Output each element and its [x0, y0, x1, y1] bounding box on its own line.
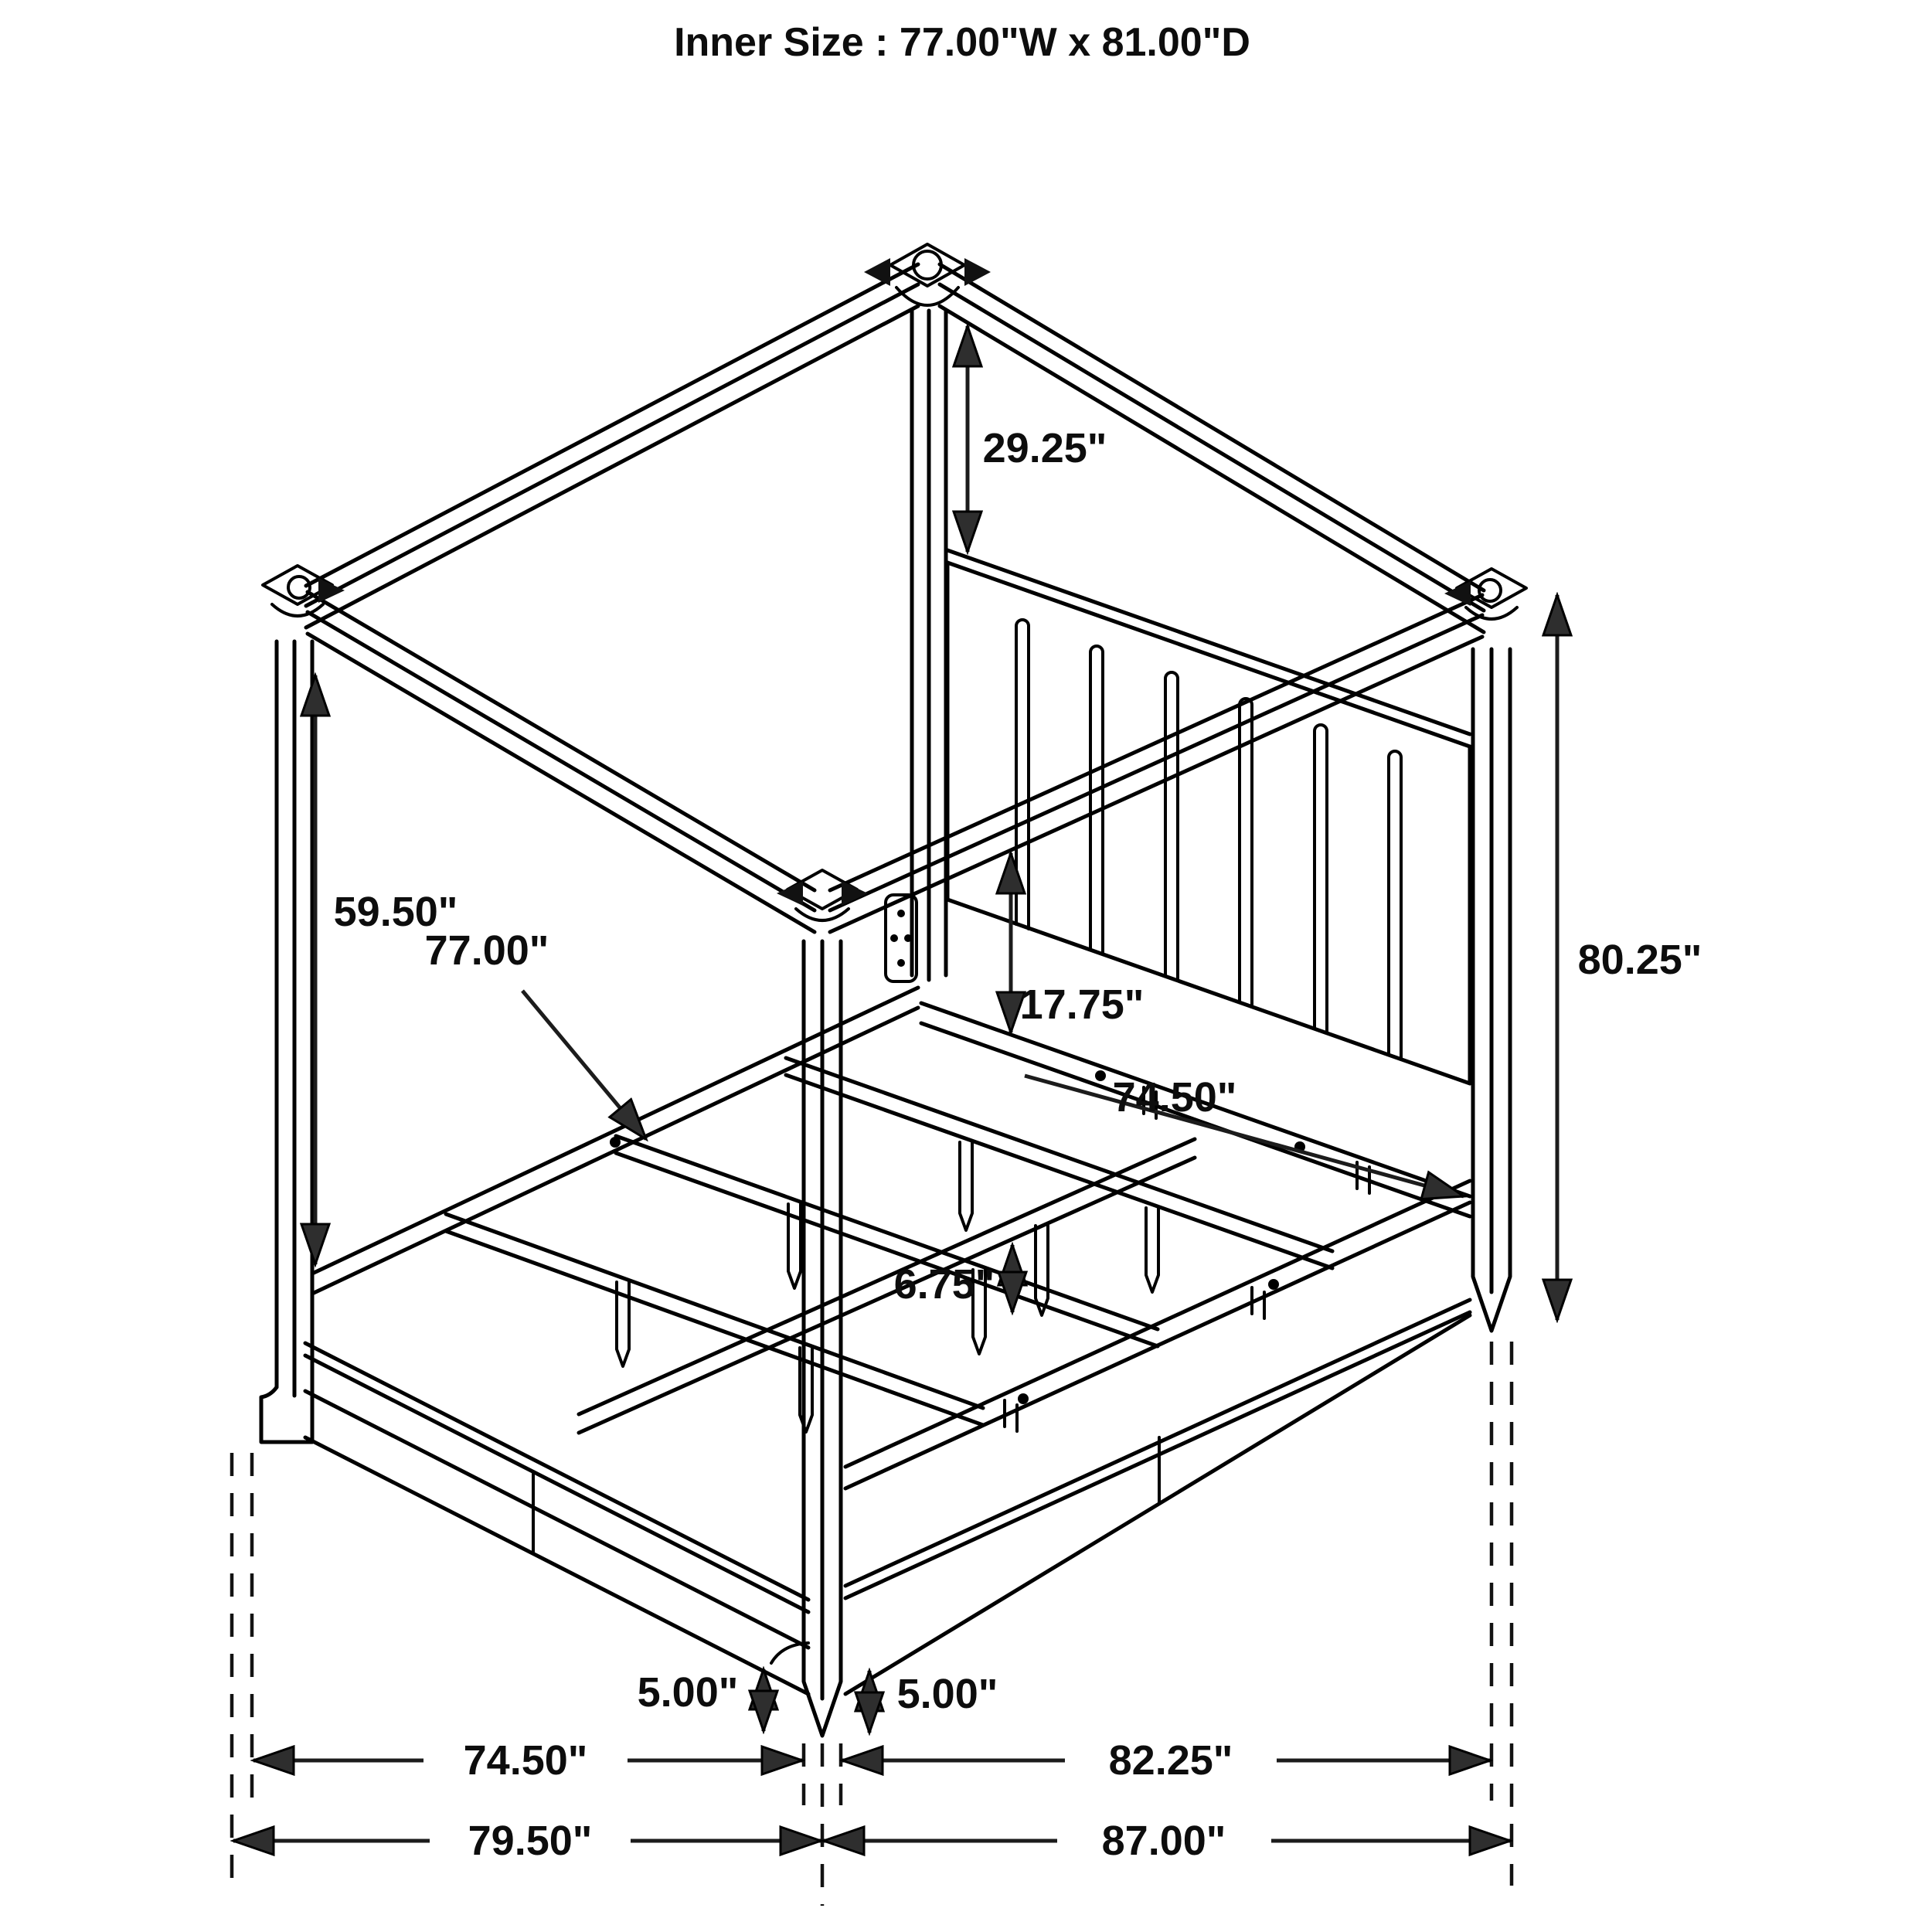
- canopy-corner-cap-rear: [864, 244, 991, 305]
- diagram-title: Inner Size : 77.00"W x 81.00"D: [674, 20, 1250, 65]
- dim-label-foot-height-side: 5.00": [897, 1671, 998, 1717]
- dim-label-post-overall-height: 80.25": [1578, 937, 1702, 983]
- dim-label-base-width-inner: 74.50": [464, 1737, 588, 1784]
- dim-label-foot-height-front: 5.00": [638, 1669, 739, 1716]
- canopy-frame: [263, 244, 1526, 932]
- dimension-annotations: 29.25" 59.50" 77.00" 17.75" 74.50" 80.25…: [232, 326, 1702, 1906]
- dim-label-base-depth-overall: 87.00": [1102, 1818, 1226, 1864]
- dim-label-canopy-drop: 29.25": [983, 425, 1107, 471]
- dim-label-base-depth-inner: 82.25": [1109, 1737, 1233, 1784]
- canopy-bed-dimension-diagram: 29.25" 59.50" 77.00" 17.75" 74.50" 80.25…: [0, 0, 1932, 1932]
- bed-dimension-diagram-page: 29.25" 59.50" 77.00" 17.75" 74.50" 80.25…: [0, 0, 1932, 1932]
- dim-label-support-leg-height: 6.75": [894, 1261, 995, 1308]
- dim-label-base-width-overall: 79.50": [468, 1818, 593, 1864]
- dim-label-canopy-to-headrail: 17.75": [1020, 981, 1145, 1028]
- dim-label-slat-length: 77.00": [425, 927, 549, 974]
- dim-label-rail-inner-depth: 74.50": [1113, 1074, 1237, 1121]
